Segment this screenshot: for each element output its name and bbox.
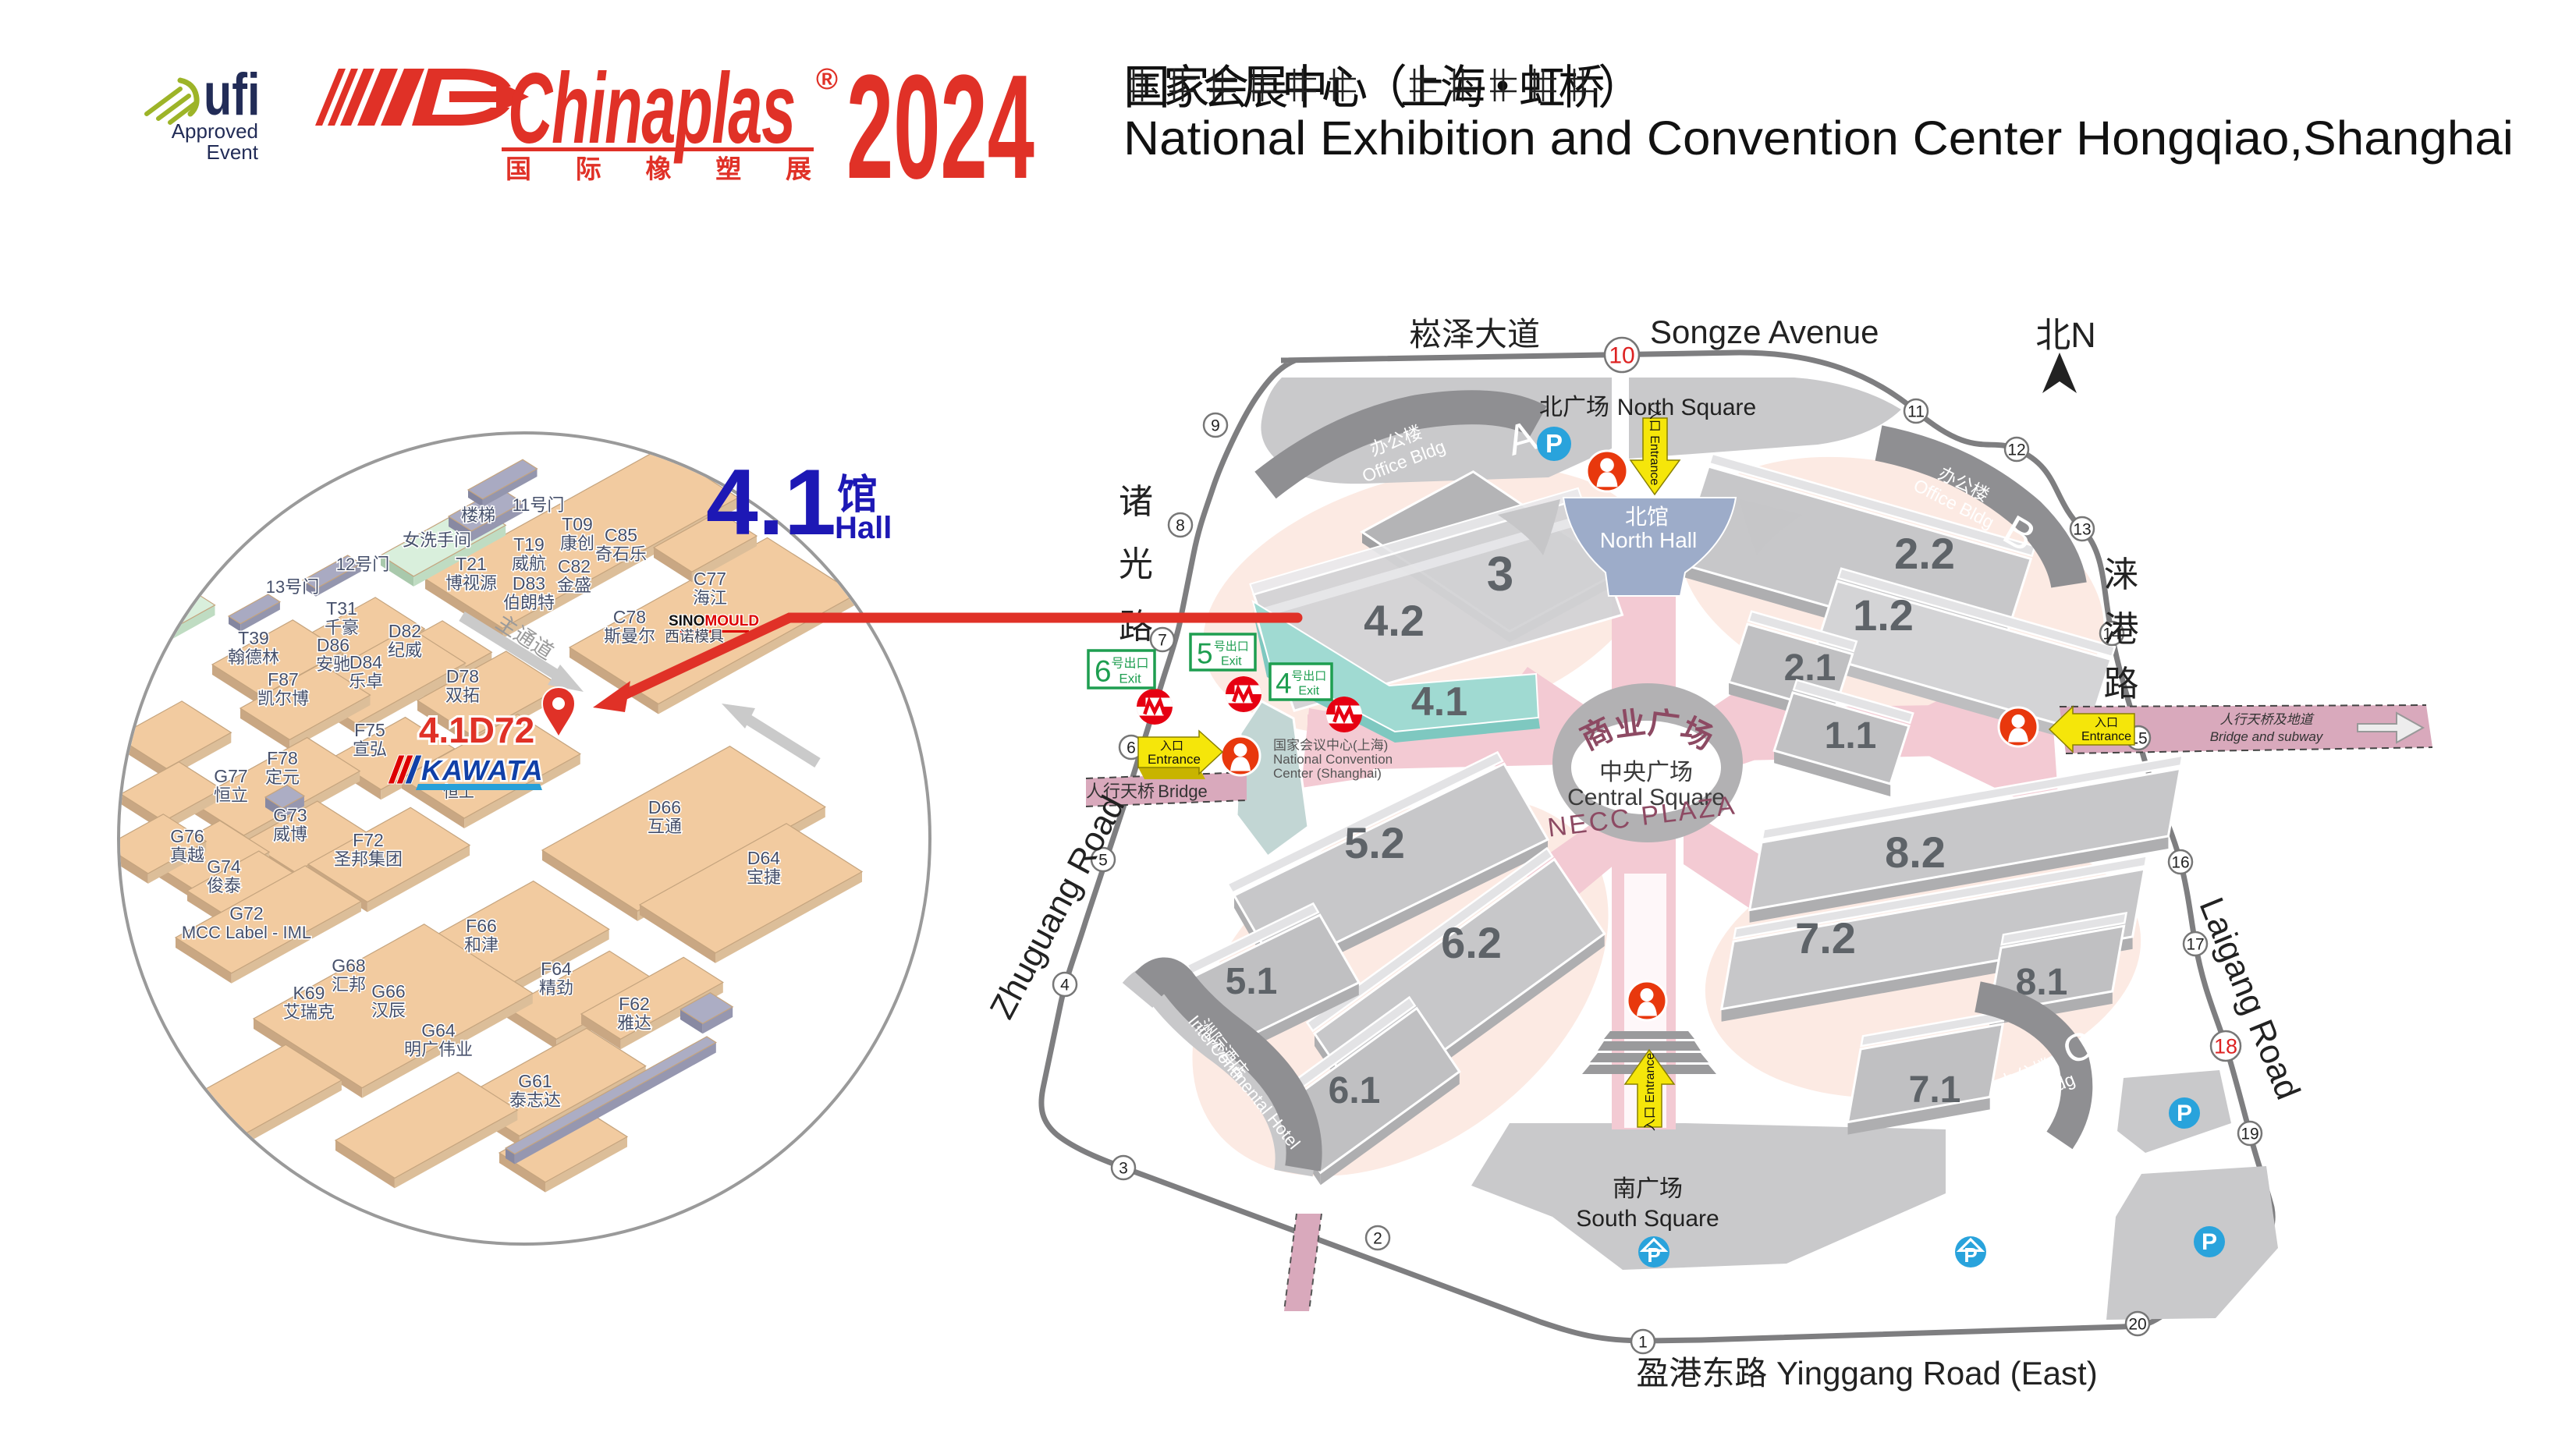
svg-text:17: 17: [2186, 935, 2204, 953]
svg-text:盈港东路 Yinggang Road (East): 盈港东路 Yinggang Road (East): [1636, 1355, 2097, 1392]
svg-text:G76: G76: [170, 826, 204, 846]
svg-text:11号门: 11号门: [513, 495, 565, 515]
svg-text:South Square: South Square: [1576, 1206, 1719, 1232]
svg-text:4: 4: [1276, 668, 1292, 700]
svg-text:1: 1: [1638, 1333, 1648, 1351]
svg-text:ufi: ufi: [204, 62, 260, 128]
svg-text:威航: 威航: [512, 554, 546, 573]
svg-text:Hall: Hall: [835, 511, 892, 545]
svg-text:C78: C78: [613, 607, 646, 627]
svg-text:12号门: 12号门: [336, 555, 389, 574]
svg-text:P: P: [1964, 1243, 1977, 1267]
svg-text:入口 Entrance: 入口 Entrance: [1644, 1053, 1657, 1132]
svg-text:K69: K69: [293, 983, 325, 1003]
svg-text:P: P: [1647, 1243, 1660, 1267]
svg-text:KAWATA: KAWATA: [421, 754, 544, 786]
svg-text:®: ®: [816, 63, 838, 96]
svg-text:定元: 定元: [265, 768, 300, 787]
svg-text:8.2: 8.2: [1885, 828, 1946, 877]
svg-text:恒立: 恒立: [214, 785, 248, 805]
svg-text:互通: 互通: [648, 817, 682, 836]
svg-text:12: 12: [2007, 441, 2025, 459]
svg-text:5: 5: [1197, 638, 1213, 670]
svg-text:泰志达: 泰志达: [509, 1090, 561, 1110]
svg-text:7.2: 7.2: [1795, 913, 1856, 963]
svg-text:13: 13: [2073, 520, 2091, 538]
svg-text:女洗手间: 女洗手间: [403, 530, 471, 550]
svg-text:F64: F64: [541, 959, 572, 979]
svg-text:Approved: Approved: [172, 119, 258, 143]
svg-text:入口: 入口: [1160, 739, 1183, 753]
svg-text:16: 16: [2171, 853, 2189, 871]
svg-text:4.1: 4.1: [1411, 679, 1467, 725]
svg-text:C85: C85: [605, 525, 637, 545]
svg-text:海江: 海江: [693, 588, 727, 608]
svg-text:人行天桥及地道: 人行天桥及地道: [2220, 712, 2315, 727]
svg-text:G74: G74: [207, 856, 241, 877]
svg-text:伯朗特: 伯朗特: [503, 593, 555, 612]
svg-text:20: 20: [2128, 1315, 2146, 1333]
svg-text:10: 10: [1609, 343, 1634, 369]
svg-text:入口: 入口: [2095, 716, 2118, 729]
svg-text:路: 路: [2103, 664, 2138, 704]
svg-text:F66: F66: [466, 916, 497, 936]
svg-text:精劲: 精劲: [539, 978, 573, 998]
svg-text:诸: 诸: [1119, 483, 1153, 521]
svg-text:MCC Label - IML: MCC Label - IML: [182, 923, 311, 942]
svg-text:F72: F72: [353, 830, 384, 850]
svg-text:5.2: 5.2: [1344, 818, 1405, 867]
svg-text:North Square: North Square: [1617, 395, 1756, 420]
svg-text:安驰: 安驰: [316, 654, 350, 674]
svg-text:南广场: 南广场: [1613, 1176, 1683, 1202]
svg-text:SINOMOULD: SINOMOULD: [669, 613, 759, 629]
svg-text:汉辰: 汉辰: [371, 1001, 406, 1020]
svg-text:号出口: 号出口: [1291, 670, 1326, 683]
svg-text:Bridge: Bridge: [1158, 782, 1208, 801]
svg-text:Bridge and subway: Bridge and subway: [2210, 729, 2324, 744]
svg-text:Exit: Exit: [1119, 671, 1141, 686]
svg-text:1.1: 1.1: [1825, 715, 1877, 757]
svg-text:双拓: 双拓: [445, 686, 480, 705]
svg-text:G68: G68: [332, 955, 365, 976]
svg-text:National Exhibition and Conven: National Exhibition and Convention Cente…: [1123, 112, 2514, 165]
svg-text:T21: T21: [456, 554, 487, 574]
svg-text:D78: D78: [446, 666, 479, 686]
svg-text:雅达: 雅达: [617, 1013, 651, 1033]
svg-text:北N: 北N: [2035, 315, 2096, 355]
svg-text:4: 4: [1060, 976, 1070, 994]
svg-text:7.1: 7.1: [1909, 1069, 1961, 1111]
svg-text:T39: T39: [238, 628, 269, 648]
svg-text:号出口: 号出口: [1214, 640, 1249, 654]
svg-text:F62: F62: [619, 994, 650, 1014]
svg-text:2: 2: [1373, 1229, 1382, 1247]
svg-text:威博: 威博: [273, 824, 307, 844]
svg-text:Exit: Exit: [1221, 655, 1242, 668]
svg-text:13号门: 13号门: [266, 577, 319, 597]
svg-text:5.1: 5.1: [1226, 961, 1278, 1002]
svg-text:2024: 2024: [846, 44, 1034, 210]
svg-text:康创: 康创: [560, 534, 594, 553]
svg-text:D66: D66: [648, 797, 681, 817]
svg-text:T19: T19: [513, 534, 545, 555]
svg-text:Entrance: Entrance: [2081, 730, 2131, 743]
svg-text:纪威: 纪威: [388, 640, 422, 660]
svg-text:6.1: 6.1: [1329, 1070, 1381, 1111]
svg-text:俊泰: 俊泰: [207, 876, 241, 895]
svg-text:3: 3: [1487, 548, 1513, 601]
svg-text:斯曼尔: 斯曼尔: [604, 626, 655, 646]
svg-text:P: P: [2177, 1101, 2192, 1126]
svg-text:Exit: Exit: [1298, 685, 1319, 698]
svg-text:National Convention: National Convention: [1273, 752, 1393, 767]
svg-text:F75: F75: [354, 720, 385, 740]
svg-text:T31: T31: [326, 598, 357, 619]
svg-text:Center (Shanghai): Center (Shanghai): [1273, 766, 1382, 781]
svg-text:7: 7: [1158, 631, 1167, 649]
svg-text:港: 港: [2103, 609, 2138, 649]
svg-text:North Hall: North Hall: [1600, 528, 1697, 552]
svg-text:C82: C82: [558, 556, 591, 576]
svg-text:西诺模具: 西诺模具: [665, 628, 724, 645]
svg-text:国家会展中心（上海・虹桥）: 国家会展中心（上海・虹桥）: [1123, 62, 1645, 114]
svg-text:18: 18: [2214, 1034, 2237, 1058]
svg-text:6: 6: [1095, 654, 1112, 688]
svg-text:11: 11: [1907, 402, 1925, 420]
svg-text:3: 3: [1119, 1159, 1128, 1177]
svg-text:国 际 橡 塑 展: 国 际 橡 塑 展: [506, 154, 811, 183]
svg-text:Entrance: Entrance: [1148, 752, 1201, 767]
svg-text:入口 Entrance: 入口 Entrance: [1648, 407, 1661, 486]
svg-text:4.1: 4.1: [706, 450, 836, 555]
svg-text:汇邦: 汇邦: [332, 975, 366, 994]
svg-text:D84: D84: [349, 652, 382, 672]
svg-text:C77: C77: [694, 569, 726, 589]
svg-text:凯尔博: 凯尔博: [257, 689, 309, 708]
svg-text:F78: F78: [267, 748, 298, 768]
svg-text:号出口: 号出口: [1112, 657, 1149, 671]
svg-text:G77: G77: [214, 766, 247, 786]
svg-text:艾瑞克: 艾瑞克: [283, 1002, 335, 1022]
svg-text:翰德林: 翰德林: [228, 647, 279, 667]
svg-text:Event: Event: [207, 140, 259, 164]
svg-text:F87: F87: [268, 669, 299, 690]
svg-text:北广场: 北广场: [1539, 395, 1609, 420]
svg-text:6.2: 6.2: [1441, 918, 1502, 967]
svg-text:崧泽大道: 崧泽大道: [1409, 316, 1540, 353]
svg-text:楼梯: 楼梯: [461, 505, 495, 525]
svg-text:奇石乐: 奇石乐: [595, 544, 647, 564]
svg-text:P: P: [1545, 429, 1563, 458]
svg-text:2.1: 2.1: [1784, 647, 1836, 689]
svg-text:19: 19: [2241, 1125, 2258, 1143]
svg-text:北馆: 北馆: [1625, 505, 1669, 529]
svg-text:乐卓: 乐卓: [349, 672, 383, 691]
svg-text:Songze Avenue: Songze Avenue: [1650, 314, 1879, 350]
svg-text:G61: G61: [518, 1071, 552, 1091]
svg-text:光: 光: [1119, 545, 1153, 583]
svg-text:D83: D83: [513, 573, 545, 594]
svg-text:圣邦集团: 圣邦集团: [334, 849, 403, 869]
svg-text:8: 8: [1176, 516, 1185, 534]
svg-text:D86: D86: [317, 635, 349, 655]
svg-text:T09: T09: [562, 514, 593, 534]
svg-text:G64: G64: [421, 1020, 456, 1041]
svg-text:4.2: 4.2: [1364, 596, 1425, 645]
svg-text:1.2: 1.2: [1853, 590, 1914, 640]
svg-text:G73: G73: [273, 805, 307, 825]
svg-text:和津: 和津: [464, 935, 499, 955]
svg-text:G72: G72: [229, 903, 263, 924]
svg-text:6: 6: [1127, 739, 1136, 757]
svg-text:金盛: 金盛: [557, 576, 591, 595]
svg-text:9: 9: [1211, 417, 1220, 434]
svg-text:2.2: 2.2: [1894, 529, 1955, 578]
svg-text:宣弘: 宣弘: [353, 739, 387, 759]
svg-text:明广伟业: 明广伟业: [404, 1040, 473, 1059]
svg-text:中央广场: 中央广场: [1599, 760, 1693, 785]
svg-text:宝捷: 宝捷: [747, 867, 781, 887]
svg-text:D82: D82: [389, 621, 421, 641]
svg-text:G66: G66: [371, 981, 405, 1002]
svg-text:博视源: 博视源: [445, 573, 497, 593]
svg-text:国家会议中心(上海): 国家会议中心(上海): [1273, 738, 1388, 753]
svg-text:真越: 真越: [170, 846, 204, 865]
svg-text:涞: 涞: [2103, 555, 2138, 594]
svg-text:D64: D64: [747, 848, 780, 868]
svg-text:P: P: [2202, 1229, 2217, 1255]
svg-text:4.1D72: 4.1D72: [419, 710, 534, 750]
